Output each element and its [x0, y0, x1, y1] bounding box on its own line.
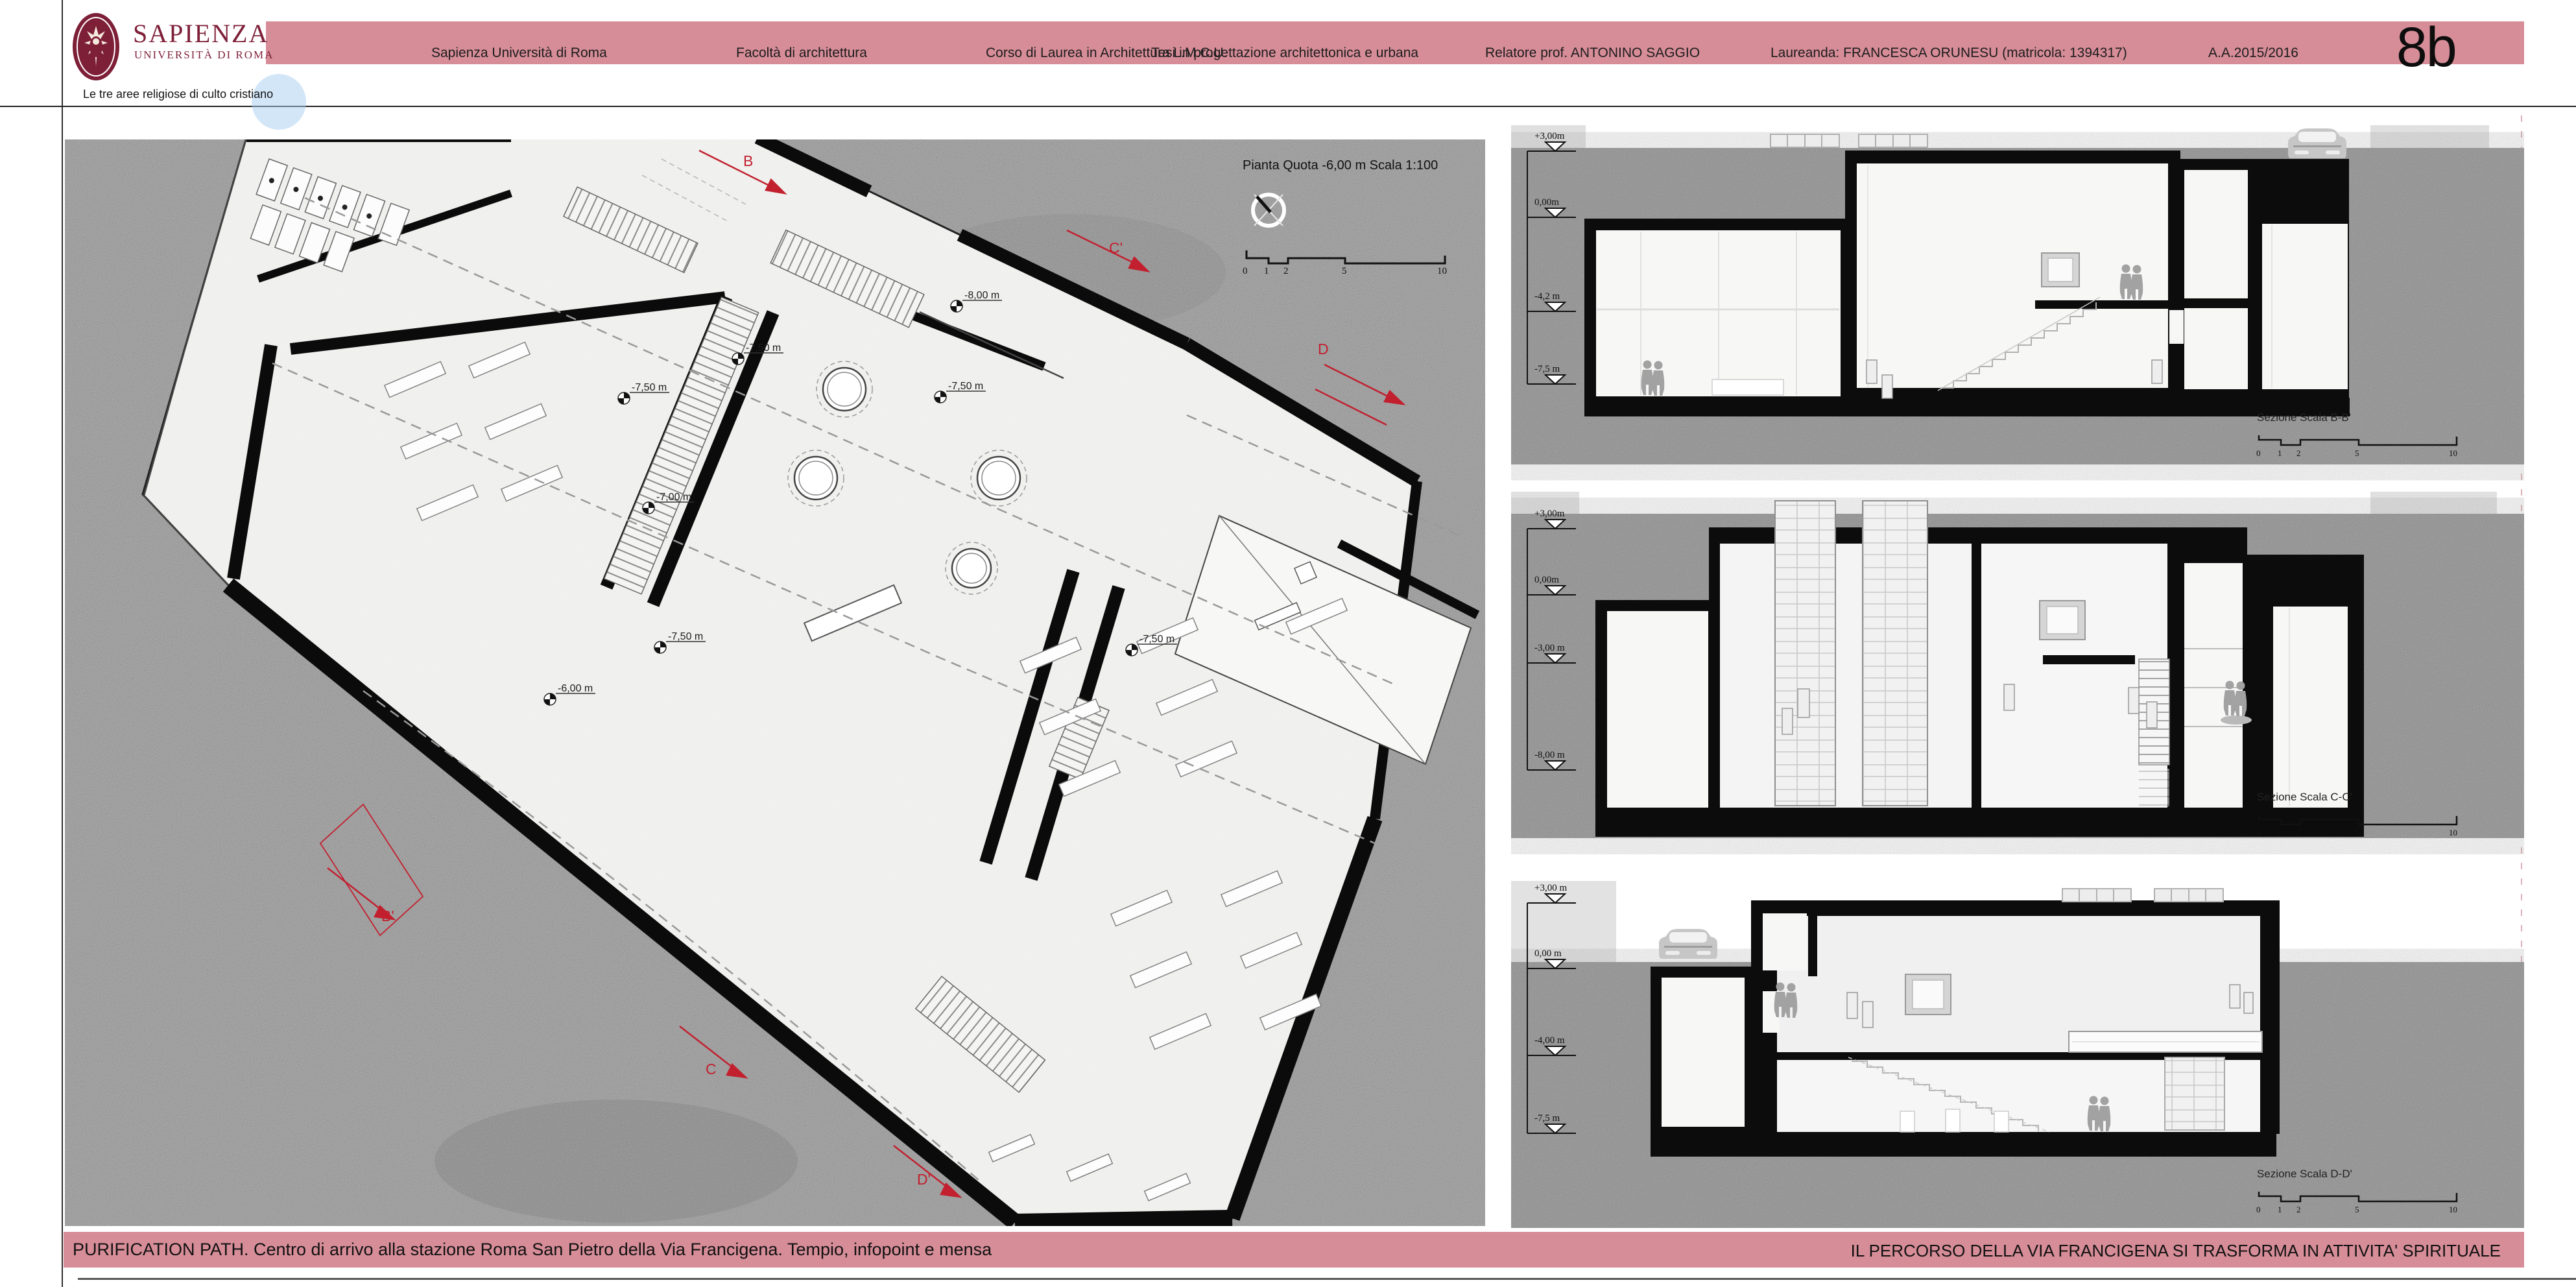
elevation-label: -7,5 m [1534, 1113, 1560, 1124]
brand-subtitle: UNIVERSITÀ DI ROMA [134, 49, 274, 62]
section-bb [1511, 125, 2524, 464]
cut-label-b2: B' [381, 908, 394, 924]
level-marker-label: -7,50 m [668, 631, 703, 643]
section-cc-label: Sezione Scala C-C' [2257, 791, 2352, 804]
elevation-label: -4,2 m [1534, 291, 1560, 302]
elevation-label: -4,00 m [1534, 1035, 1565, 1046]
level-marker-label: -7,00 m [656, 492, 691, 503]
scale-tick: 1 [2278, 828, 2282, 837]
header-university: Sapienza Università di Roma [431, 45, 607, 60]
elevation-label: +3,00m [1534, 509, 1564, 520]
section-dd-label: Sezione Scala D-D' [2257, 1168, 2352, 1181]
brand-name: SAPIENZA [133, 19, 268, 48]
page-number: 8b [2396, 17, 2456, 78]
elevation-label: -7,5 m [1534, 364, 1560, 375]
cut-label-b: B [743, 153, 753, 169]
level-marker-label: -7,50 m [632, 382, 667, 394]
scale-tick: 2 [2296, 1205, 2301, 1214]
scale-tick: 10 [2449, 449, 2457, 458]
scale-tick: 0 [2256, 1205, 2261, 1214]
footer-title: PURIFICATION PATH. Centro di arrivo alla… [73, 1240, 992, 1260]
footer-slogan: IL PERCORSO DELLA VIA FRANCIGENA SI TRAS… [1851, 1242, 2501, 1260]
section-bb-label: Sezione Scala B-B' [2257, 412, 2351, 424]
scale-tick: 1 [2278, 1205, 2282, 1214]
cut-label-d: D [1318, 341, 1329, 357]
thesis-board: SAPIENZA UNIVERSITÀ DI ROMA Sapienza Uni… [0, 0, 2576, 1287]
scale-tick: 10 [2449, 828, 2457, 837]
plan-drawing [65, 139, 1485, 1226]
elevation-label: +3,00 m [1534, 883, 1567, 894]
scale-tick: 0 [2256, 828, 2261, 837]
elevation-label: 0,00m [1534, 575, 1559, 586]
scale-tick: 0 [1243, 266, 1248, 277]
scale-tick: 5 [2355, 1205, 2359, 1214]
scale-tick: 5 [2355, 828, 2359, 837]
elevation-label: -3,00 m [1534, 643, 1565, 654]
level-marker-label: -7,50 m [948, 381, 983, 392]
level-marker-label: -7,50 m [1139, 634, 1175, 645]
cut-label-d2: D' [917, 1172, 931, 1188]
section-dd [1511, 881, 2524, 1228]
scale-tick: 5 [2355, 449, 2359, 458]
elevation-label: 0,00 m [1534, 948, 1562, 959]
plan-title: Pianta Quota -6,00 m Scala 1:100 [1243, 158, 1438, 173]
scale-tick: 2 [1283, 266, 1289, 277]
scale-tick: 10 [1437, 266, 1447, 277]
sheet-left-border [62, 0, 63, 1287]
section-cc [1511, 492, 2524, 838]
header-rule [0, 106, 2576, 107]
elevation-label: 0,00m [1534, 197, 1559, 208]
header-faculty: Facoltà di architettura [736, 45, 867, 60]
scale-tick: 5 [1342, 266, 1347, 277]
sections-drawing [1511, 110, 2524, 1228]
header-advisor: Relatore prof. ANTONINO SAGGIO [1485, 45, 1700, 60]
elevation-label: +3,00m [1534, 131, 1564, 142]
level-marker-label: -8,00 m [964, 290, 999, 302]
level-marker-label: -7,50 m [746, 343, 781, 354]
cut-label-c2: C' [1109, 240, 1123, 256]
scale-tick: 1 [2278, 449, 2282, 458]
sapienza-logo-icon [67, 9, 126, 86]
board-subtitle: Le tre aree religiose di culto cristiano [83, 88, 273, 101]
scale-tick: 0 [2256, 449, 2261, 458]
cut-label-c: C [706, 1061, 717, 1077]
level-marker-label: -6,00 m [558, 683, 593, 695]
scale-tick: 1 [1264, 266, 1269, 277]
header-student: Laureanda: FRANCESCA ORUNESU (matricola:… [1771, 45, 2127, 60]
subtitle-highlight [252, 74, 306, 130]
elevation-label: -8,00 m [1534, 750, 1565, 761]
header-thesis: Tesi in progettazione architettonica e u… [1151, 45, 1418, 60]
scale-tick: 10 [2449, 1205, 2457, 1214]
footer-rule [78, 1278, 2576, 1280]
header-academic-year: A.A.2015/2016 [2208, 45, 2298, 60]
scale-tick: 2 [2296, 828, 2301, 837]
scale-tick: 2 [2296, 449, 2301, 458]
